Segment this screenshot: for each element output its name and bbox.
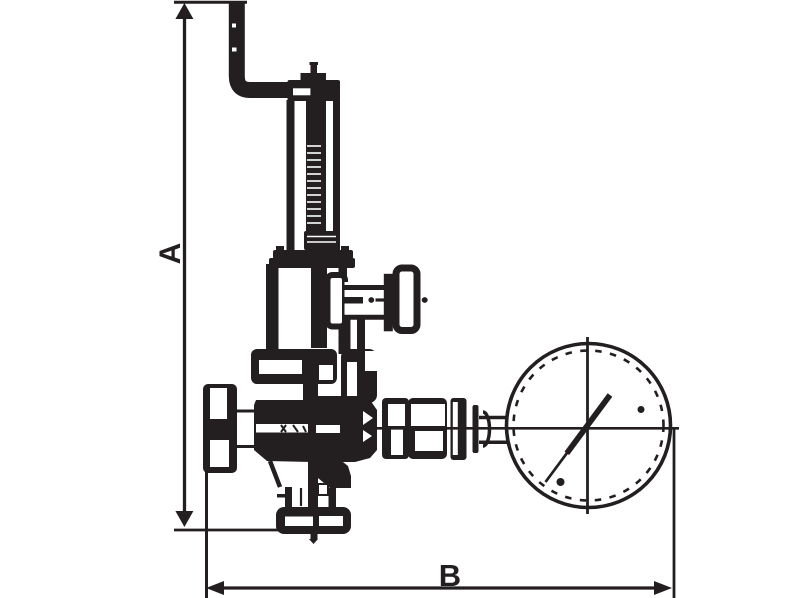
svg-text:A: A — [154, 243, 187, 265]
svg-text:B: B — [439, 558, 461, 593]
